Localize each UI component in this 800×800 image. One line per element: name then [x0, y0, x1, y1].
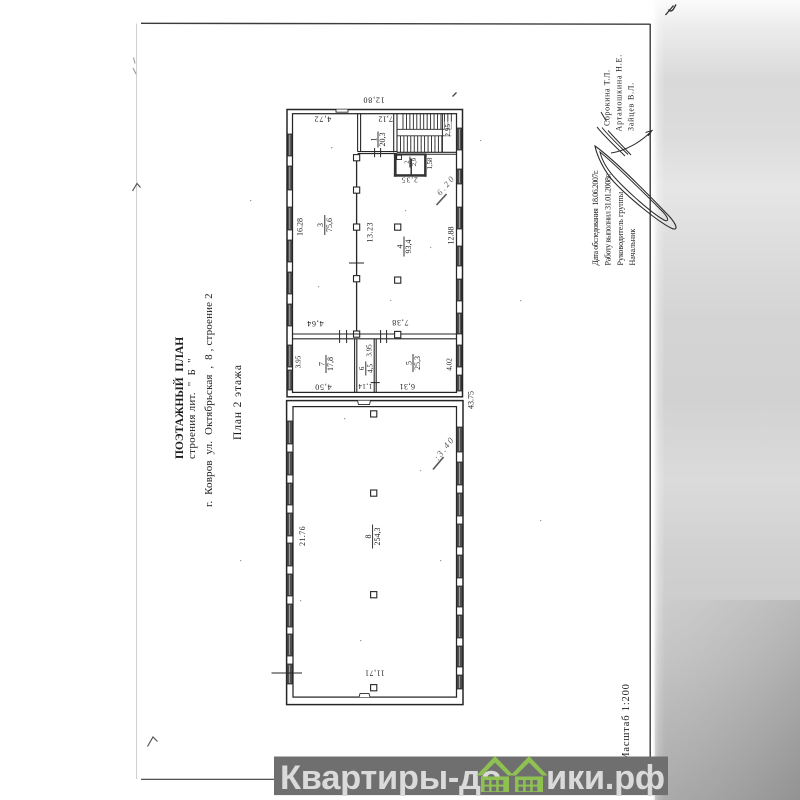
- svg-text:11,71: 11,71: [365, 668, 385, 677]
- svg-text:4,50: 4,50: [314, 382, 331, 391]
- svg-text:7: 7: [317, 362, 326, 366]
- svg-text:Руководитель группы: Руководитель группы: [616, 191, 625, 265]
- svg-text:План 2 этажа: План 2 этажа: [232, 364, 244, 440]
- svg-text:1,58: 1,58: [427, 157, 434, 169]
- svg-text:12.88: 12.88: [446, 227, 455, 245]
- svg-text:Масштаб 1:200: Масштаб 1:200: [621, 683, 632, 761]
- svg-text:7,38: 7,38: [391, 318, 408, 327]
- svg-text:93,4: 93,4: [404, 240, 413, 254]
- svg-text:Начальник: Начальник: [628, 229, 637, 266]
- svg-text:Квартиры-до: Квартиры-до: [280, 759, 501, 797]
- svg-text:3: 3: [316, 223, 325, 227]
- svg-text:6: 6: [358, 366, 366, 370]
- svg-text:1,14: 1,14: [358, 382, 372, 390]
- svg-text:8: 8: [364, 535, 373, 539]
- svg-text:4: 4: [395, 245, 404, 249]
- svg-text:17,8: 17,8: [326, 357, 335, 371]
- svg-text:1: 1: [369, 138, 378, 142]
- svg-text:7,12: 7,12: [378, 115, 393, 124]
- svg-text:4,5: 4,5: [366, 364, 374, 373]
- svg-text:4,64: 4,64: [306, 319, 323, 328]
- svg-text:2,95: 2,95: [444, 124, 452, 137]
- svg-text:Зайцев В.Л.: Зайцев В.Л.: [627, 82, 636, 131]
- svg-text:12,80: 12,80: [363, 95, 385, 104]
- svg-text:21.76: 21.76: [298, 526, 307, 546]
- svg-text:Артамошкина Н.Е.: Артамошкина Н.Е.: [615, 54, 624, 132]
- svg-text:2,9: 2,9: [411, 158, 418, 166]
- svg-text:ПОЭТАЖНЫЙ ПЛАН: ПОЭТАЖНЫЙ ПЛАН: [172, 337, 186, 459]
- svg-text:20,3: 20,3: [378, 133, 387, 147]
- svg-text:43.75: 43.75: [467, 391, 476, 409]
- svg-text:Дата обследования 18.06.2007г: Дата обследования 18.06.2007г.: [591, 170, 600, 265]
- svg-text:4,72: 4,72: [314, 114, 332, 123]
- svg-text:75,6: 75,6: [325, 218, 334, 232]
- svg-text:3.95: 3.95: [366, 344, 374, 357]
- svg-text:2,35: 2,35: [401, 176, 418, 185]
- svg-text:16.28: 16.28: [296, 218, 305, 236]
- svg-text:5: 5: [404, 361, 413, 365]
- svg-text:25,3: 25,3: [413, 356, 422, 370]
- svg-text:Работу выполнил 31.01.2008г.: Работу выполнил 31.01.2008г.: [604, 173, 613, 265]
- svg-text:3.95: 3.95: [294, 355, 302, 368]
- svg-text:2: 2: [403, 160, 410, 163]
- svg-text:13.23: 13.23: [365, 222, 374, 243]
- svg-text:254,3: 254,3: [373, 528, 382, 546]
- svg-text:г. Ковров ул. Октябрьская: г. Ковров ул. Октябрьская , 8 , строение…: [203, 293, 215, 507]
- svg-text:ики.рф: ики.рф: [546, 759, 665, 797]
- svg-text:6,31: 6,31: [399, 382, 415, 391]
- svg-text:4,02: 4,02: [446, 358, 454, 371]
- svg-text:строения лит. " Б ": строения лит. " Б ": [186, 358, 198, 459]
